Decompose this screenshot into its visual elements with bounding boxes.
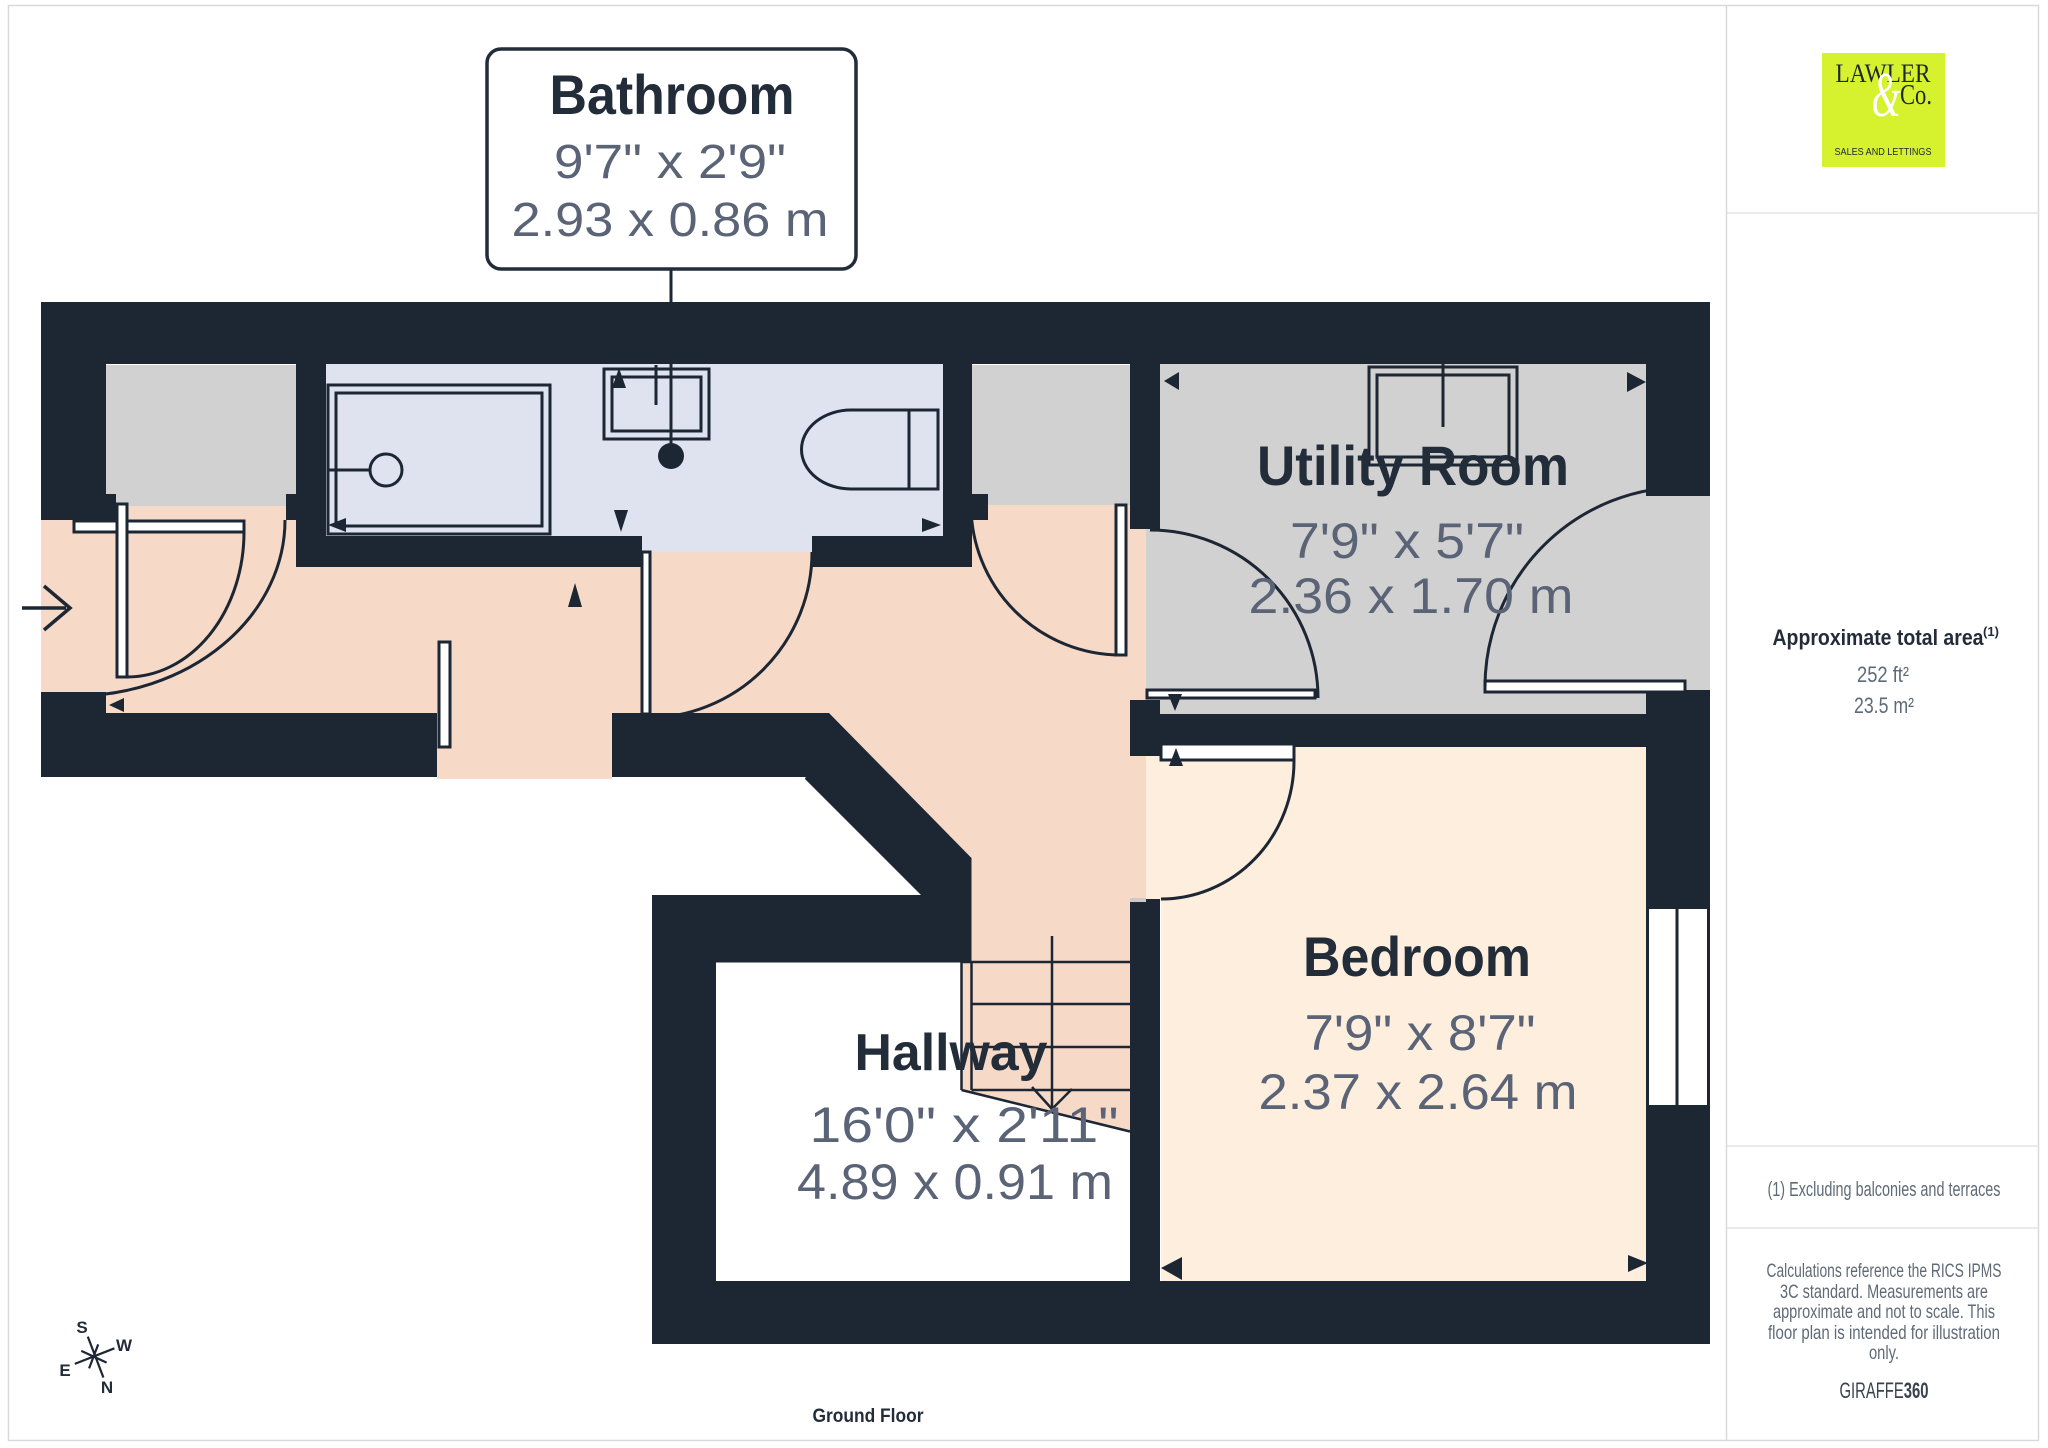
svg-text:approximate and not to scale.: approximate and not to scale. This (1773, 1301, 1995, 1323)
svg-text:2.93 x 0.86 m: 2.93 x 0.86 m (512, 194, 829, 247)
svg-text:16'0" x 2'11": 16'0" x 2'11" (810, 1097, 1119, 1153)
svg-text:252 ft²: 252 ft² (1857, 662, 1909, 687)
svg-text:2.36 x 1.70 m: 2.36 x 1.70 m (1249, 568, 1574, 624)
svg-text:(1): (1) (1983, 624, 1999, 639)
svg-text:(1) Excluding balconies and te: (1) Excluding balconies and terraces (1768, 1179, 2001, 1201)
svg-text:&: & (1872, 59, 1901, 130)
svg-text:7'9" x 8'7": 7'9" x 8'7" (1305, 1005, 1536, 1061)
svg-text:only.: only. (1869, 1342, 1899, 1364)
svg-text:23.5 m²: 23.5 m² (1854, 693, 1914, 718)
svg-text:4.89 x 0.91 m: 4.89 x 0.91 m (797, 1154, 1113, 1210)
svg-text:E: E (59, 1361, 70, 1380)
svg-text:floor plan is intended for ill: floor plan is intended for illustration (1768, 1322, 2000, 1344)
svg-text:Hallway: Hallway (855, 1024, 1048, 1082)
svg-text:3C standard. Measurements are: 3C standard. Measurements are (1780, 1281, 1988, 1303)
svg-text:Co.: Co. (1900, 80, 1932, 111)
svg-text:Ground Floor: Ground Floor (813, 1406, 925, 1427)
svg-text:Utility Room: Utility Room (1257, 434, 1569, 497)
svg-text:2.37 x 2.64 m: 2.37 x 2.64 m (1259, 1064, 1578, 1120)
svg-text:Bedroom: Bedroom (1303, 925, 1531, 988)
svg-text:N: N (101, 1378, 113, 1397)
svg-text:9'7" x 2'9": 9'7" x 2'9" (554, 136, 786, 189)
svg-text:W: W (116, 1336, 133, 1355)
svg-text:GIRAFFE360: GIRAFFE360 (1840, 1378, 1929, 1403)
svg-text:S: S (76, 1318, 87, 1337)
svg-text:Calculations reference the RIC: Calculations reference the RICS IPMS (1767, 1260, 2002, 1282)
svg-text:SALES AND LETTINGS: SALES AND LETTINGS (1835, 147, 1932, 158)
svg-text:7'9" x 5'7": 7'9" x 5'7" (1290, 513, 1524, 569)
svg-text:Approximate total area: Approximate total area (1773, 625, 1984, 650)
svg-text:Bathroom: Bathroom (550, 63, 795, 126)
